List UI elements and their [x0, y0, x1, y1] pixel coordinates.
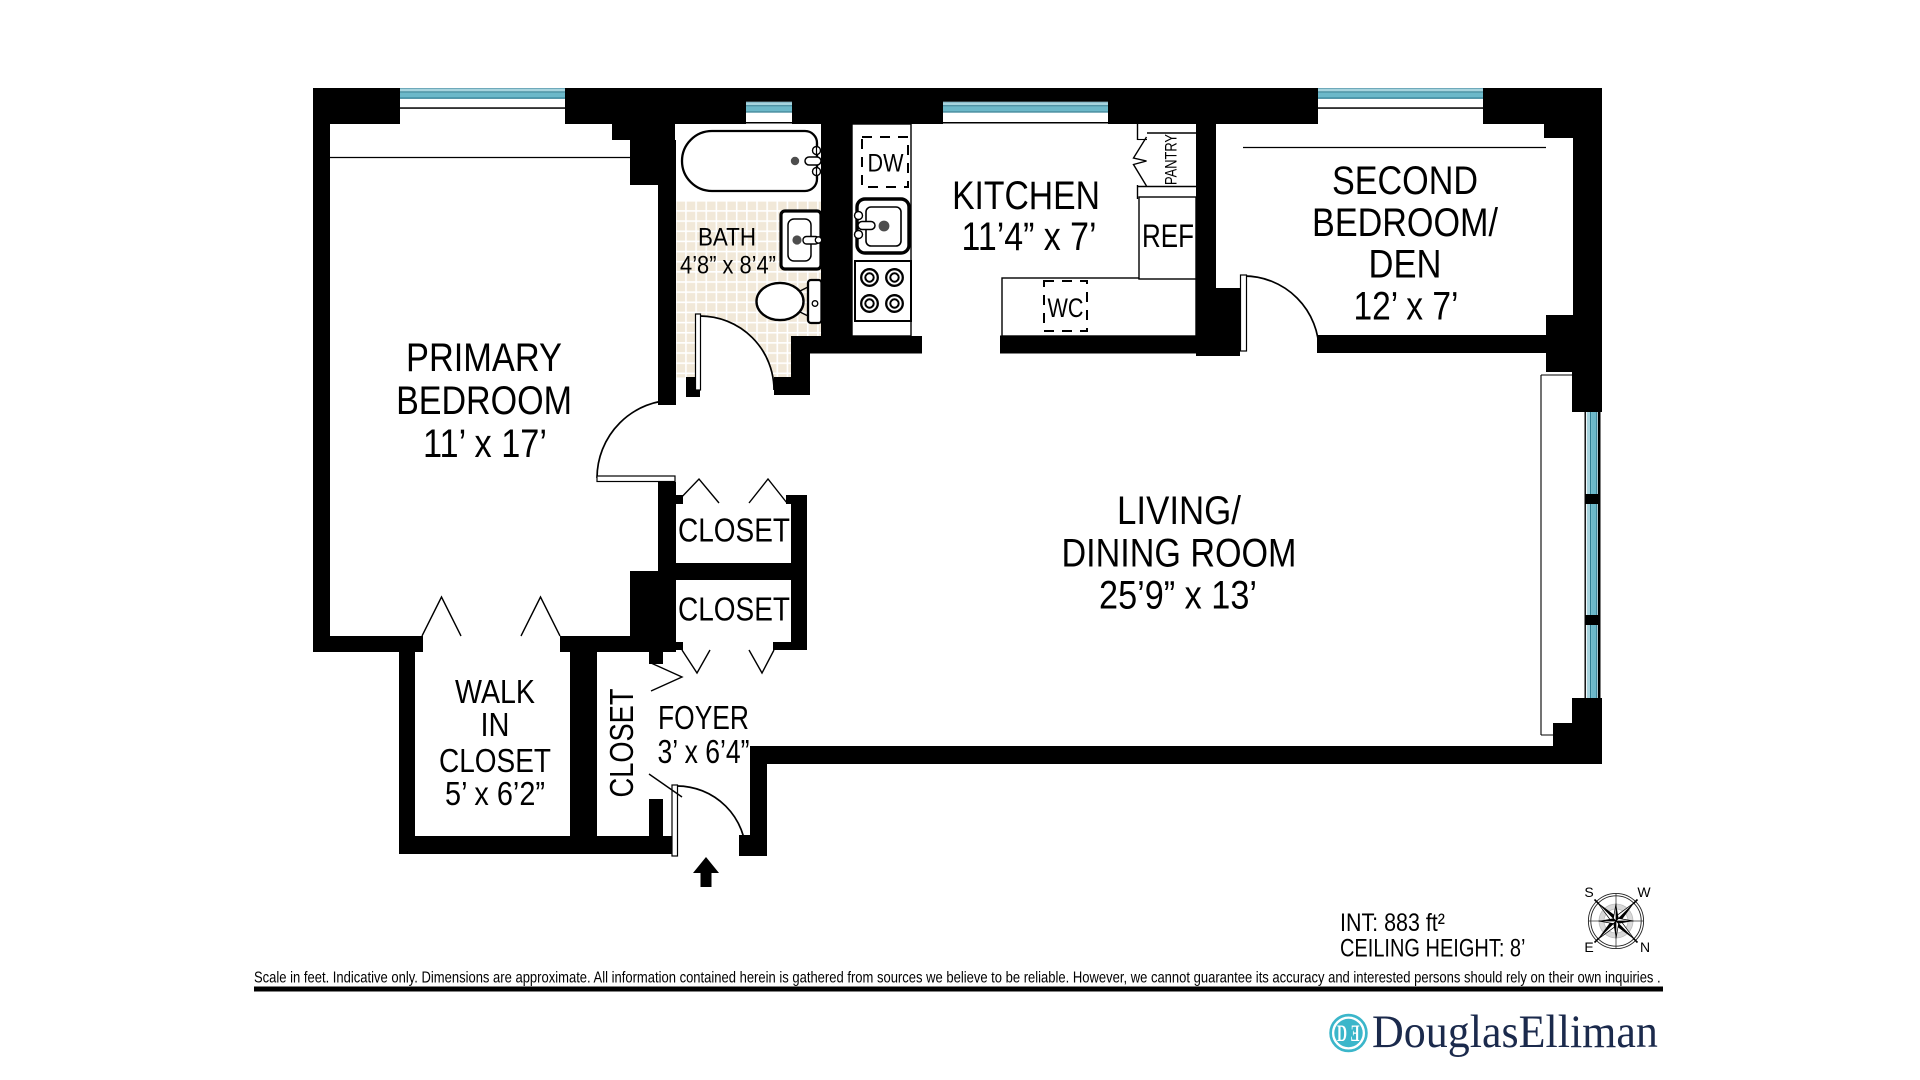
- svg-text:DW: DW: [868, 149, 904, 177]
- svg-text:SECOND: SECOND: [1332, 157, 1478, 202]
- svg-text:FOYER: FOYER: [658, 700, 749, 736]
- svg-text:BEDROOM/: BEDROOM/: [1312, 199, 1498, 244]
- svg-text:INT: 883 ft²: INT: 883 ft²: [1340, 908, 1445, 936]
- svg-text:5’ x 6’2”: 5’ x 6’2”: [445, 775, 545, 813]
- svg-text:REF: REF: [1142, 220, 1194, 255]
- svg-text:DEN: DEN: [1369, 241, 1442, 286]
- svg-text:S: S: [1584, 884, 1593, 900]
- svg-text:E: E: [1351, 1021, 1360, 1046]
- svg-text:DouglasElliman: DouglasElliman: [1372, 1005, 1658, 1058]
- svg-text:BEDROOM: BEDROOM: [396, 377, 572, 422]
- svg-text:CEILING HEIGHT: 8’: CEILING HEIGHT: 8’: [1340, 934, 1525, 962]
- svg-text:Scale in feet. Indicative only: Scale in feet. Indicative only. Dimensio…: [254, 969, 1661, 987]
- svg-text:CLOSET: CLOSET: [439, 742, 551, 780]
- svg-text:11’ x 17’: 11’ x 17’: [423, 421, 547, 466]
- svg-text:4’8” x 8’4”: 4’8” x 8’4”: [680, 251, 776, 279]
- svg-text:IN: IN: [480, 706, 509, 743]
- svg-text:WALK: WALK: [455, 673, 535, 711]
- svg-text:CLOSET: CLOSET: [603, 689, 640, 798]
- svg-text:CLOSET: CLOSET: [678, 511, 790, 549]
- svg-text:LIVING/: LIVING/: [1117, 488, 1241, 533]
- svg-text:CLOSET: CLOSET: [678, 590, 790, 628]
- svg-text:E: E: [1584, 939, 1593, 955]
- svg-text:BATH: BATH: [698, 224, 756, 251]
- svg-text:DINING ROOM: DINING ROOM: [1062, 530, 1297, 575]
- svg-text:D: D: [1337, 1021, 1347, 1046]
- svg-text:PANTRY: PANTRY: [1163, 134, 1181, 185]
- svg-text:WC: WC: [1048, 294, 1084, 324]
- svg-text:KITCHEN: KITCHEN: [952, 173, 1100, 217]
- svg-text:11’4” x 7’: 11’4” x 7’: [962, 213, 1097, 258]
- svg-text:W: W: [1637, 884, 1651, 900]
- svg-text:25’9” x 13’: 25’9” x 13’: [1099, 572, 1257, 617]
- svg-text:N: N: [1640, 939, 1650, 955]
- svg-text:PRIMARY: PRIMARY: [406, 335, 562, 380]
- svg-text:3’ x 6’4”: 3’ x 6’4”: [658, 734, 750, 770]
- svg-text:12’ x 7’: 12’ x 7’: [1354, 284, 1459, 328]
